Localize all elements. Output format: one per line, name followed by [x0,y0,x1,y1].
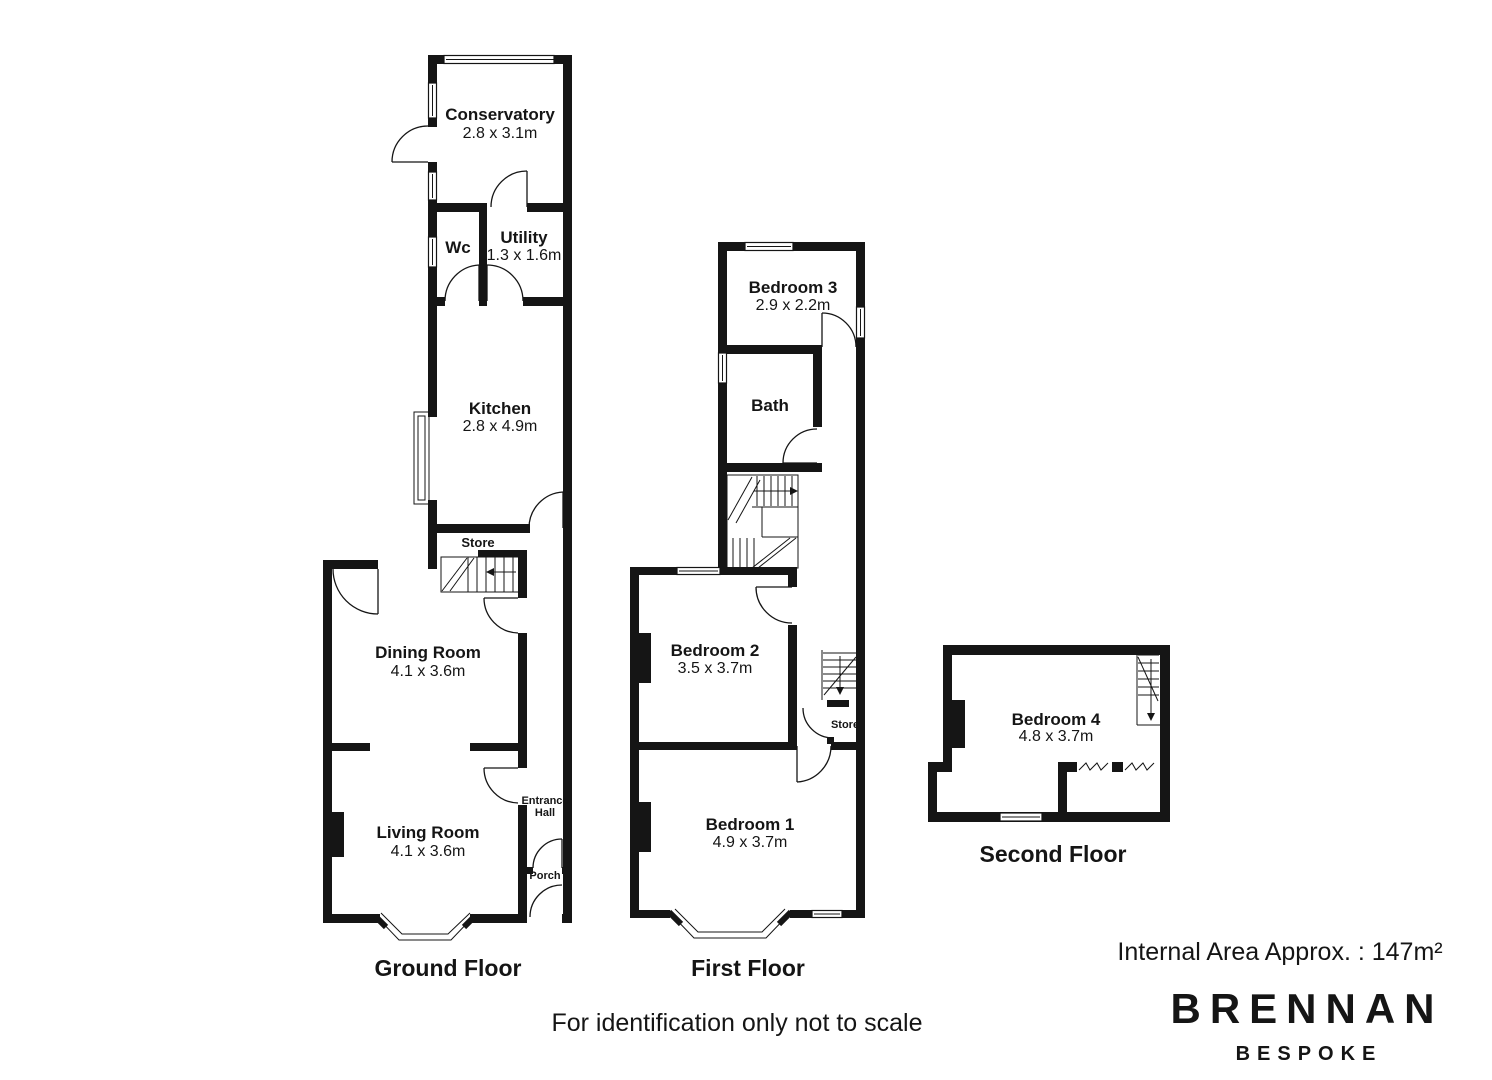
wc-window [429,237,437,267]
wall-segment [428,267,437,417]
door-arc [529,492,563,528]
wall-segment [943,645,1170,655]
bath-window [719,353,727,383]
door-arc [797,746,831,782]
room-label-wc: Wc [445,238,471,257]
conservatory-left-window [429,83,437,118]
ground-floor-title: Ground Floor [375,955,522,981]
room-name: Living Room [377,823,480,842]
wall-segment [928,812,1170,822]
room-label-bath: Bath [751,396,789,415]
room-name: Bedroom 2 [671,641,760,660]
wall-segment [718,383,727,575]
door-arc [333,569,378,614]
internal-area-note: Internal Area Approx. : 147m² [1117,938,1442,966]
wall-segment [928,762,937,822]
disclaimer-text: For identification only not to scale [551,1009,922,1037]
chimney-breast [639,633,651,683]
chimney-breast [639,802,651,852]
front-door-arc [530,885,562,917]
wall-segment [562,914,572,923]
wall-segment [428,524,530,533]
room-name: Wc [445,238,471,257]
room-dims: 4.9 x 3.7m [713,834,788,851]
room-name: Store [831,719,859,731]
bedroom1-bay-window [669,909,791,938]
wall-segment [428,162,437,172]
wall-segment [428,55,437,83]
wall-segment [718,463,822,472]
room-label-store: Store [461,535,494,550]
room-name: Utility [500,228,548,247]
bedroom2-window [677,568,720,575]
room-name: Kitchen [469,399,531,418]
bedroom3-top-window [745,243,793,251]
room-name: Porch [529,870,560,882]
wall-segment [470,914,527,923]
wall-segment [1067,762,1077,772]
room-dims: 1.3 x 1.6m [487,247,562,264]
wall-segment [727,345,817,354]
first-floor: Bedroom 3 2.9 x 2.2m Bath Bedroom 2 3.5 … [630,242,865,981]
room-dims: 4.1 x 3.6m [391,843,466,860]
chimney-breast [332,812,344,857]
first-floor-title: First Floor [691,955,805,981]
wall-segment [827,700,849,707]
second-floor-title: Second Floor [980,841,1127,867]
kitchen-bay-window [414,412,429,504]
wall-segment [1058,762,1067,822]
wall-segment [1160,645,1170,822]
room-name: Conservatory [445,105,555,124]
door-arc [392,126,428,162]
room-label-bedroom3: Bedroom 3 2.9 x 2.2m [749,278,838,314]
store-door-arc [803,708,833,738]
stairs-direction-arrow-right-icon [754,487,798,495]
door-arc [822,313,856,347]
door-arc [484,598,518,633]
door-arc [783,429,817,463]
stairs-direction-arrow-down-icon [836,656,844,695]
wall-segment [630,910,670,918]
staircase-first-floor [727,475,798,568]
door-arc [756,587,792,623]
wall-segment [563,55,572,923]
wall-segment [518,874,527,914]
conservatory-top-window [444,56,554,64]
living-room-bay-window [375,913,475,940]
wall-segment [1112,762,1123,772]
room-name: Bedroom 3 [749,278,838,297]
door-arc [484,768,518,803]
wall-segment [813,345,822,427]
landing-window [857,307,865,338]
room-dims: 2.9 x 2.2m [756,297,831,314]
wall-segment [323,560,332,923]
wall-segment [943,645,952,772]
door-arc [487,265,523,301]
bedroom1-window [812,911,842,918]
bedroom4-window [1000,813,1042,821]
wall-segment [428,297,445,306]
door-arc [491,171,527,207]
staircase-landing-store [822,650,857,700]
second-floor: Bedroom 4 4.8 x 3.7m Second Floor [928,645,1170,867]
wall-segment [428,500,437,569]
wall-segment [518,743,527,768]
door-arc [533,839,562,868]
wall-segment [788,575,797,587]
floor-plan: Conservatory 2.8 x 3.1m Wc Utility 1.3 x… [0,0,1492,1080]
room-label-conservatory: Conservatory 2.8 x 3.1m [445,105,555,142]
wall-segment [479,297,487,306]
wall-segment [323,743,370,751]
room-label-kitchen: Kitchen 2.8 x 4.9m [463,399,538,435]
room-label-bedroom2: Bedroom 2 3.5 x 3.7m [671,641,760,677]
chimney-breast [952,700,965,748]
brand-name: BRENNAN [1171,985,1444,1032]
stairs-direction-arrow-down-icon [1147,659,1155,721]
room-label-bedroom4: Bedroom 4 4.8 x 3.7m [1012,710,1101,745]
room-dims: 4.1 x 3.6m [391,663,466,680]
room-name: Dining Room [375,643,481,662]
wall-segment [518,633,527,743]
room-label-store-first: Store [831,719,859,731]
wall-segment [478,550,523,557]
brand-logo: BRENNAN BESPOKE [1171,985,1444,1065]
room-label-entrance-hall: Entrance Hall [521,795,568,819]
wall-segment [790,910,812,918]
wall-segment [523,297,572,306]
wall-segment [428,203,487,212]
room-name: Store [461,535,494,550]
room-name: Bedroom 4 [1012,710,1101,729]
room-name-line2: Hall [535,807,555,819]
room-dims: 3.5 x 3.7m [678,660,753,677]
wall-segment [630,742,797,750]
room-label-living-room: Living Room 4.1 x 3.6m [377,823,480,860]
door-arc [445,265,479,301]
room-name-line1: Entrance [521,795,568,807]
wall-segment [323,914,380,923]
room-dims: 4.8 x 3.7m [1019,728,1094,745]
stairs-direction-arrow-left-icon [486,568,516,576]
wall-segment [718,242,727,353]
conservatory-left-window [429,172,437,200]
room-dims: 2.8 x 3.1m [463,125,538,142]
staircase-second-floor [1137,650,1160,725]
wall-segment [562,867,572,874]
room-label-dining-room: Dining Room 4.1 x 3.6m [375,643,481,680]
ground-floor-walls [323,55,572,923]
room-label-bedroom1: Bedroom 1 4.9 x 3.7m [706,815,795,851]
wall-segment [856,338,865,918]
brand-tagline: BESPOKE [1236,1043,1383,1065]
room-name: Bath [751,396,789,415]
wall-segment [527,203,572,212]
room-dims: 2.8 x 4.9m [463,418,538,435]
ground-floor: Conservatory 2.8 x 3.1m Wc Utility 1.3 x… [323,55,572,981]
room-name: Bedroom 1 [706,815,795,834]
wall-segment [428,118,437,127]
room-label-utility: Utility 1.3 x 1.6m [487,228,562,264]
wall-segment [788,625,797,742]
wall-segment [831,742,865,750]
wall-segment [518,805,527,867]
staircase-ground [441,557,523,592]
wall-segment [856,242,865,307]
wall-segment [842,910,865,918]
room-label-porch: Porch [529,870,560,882]
